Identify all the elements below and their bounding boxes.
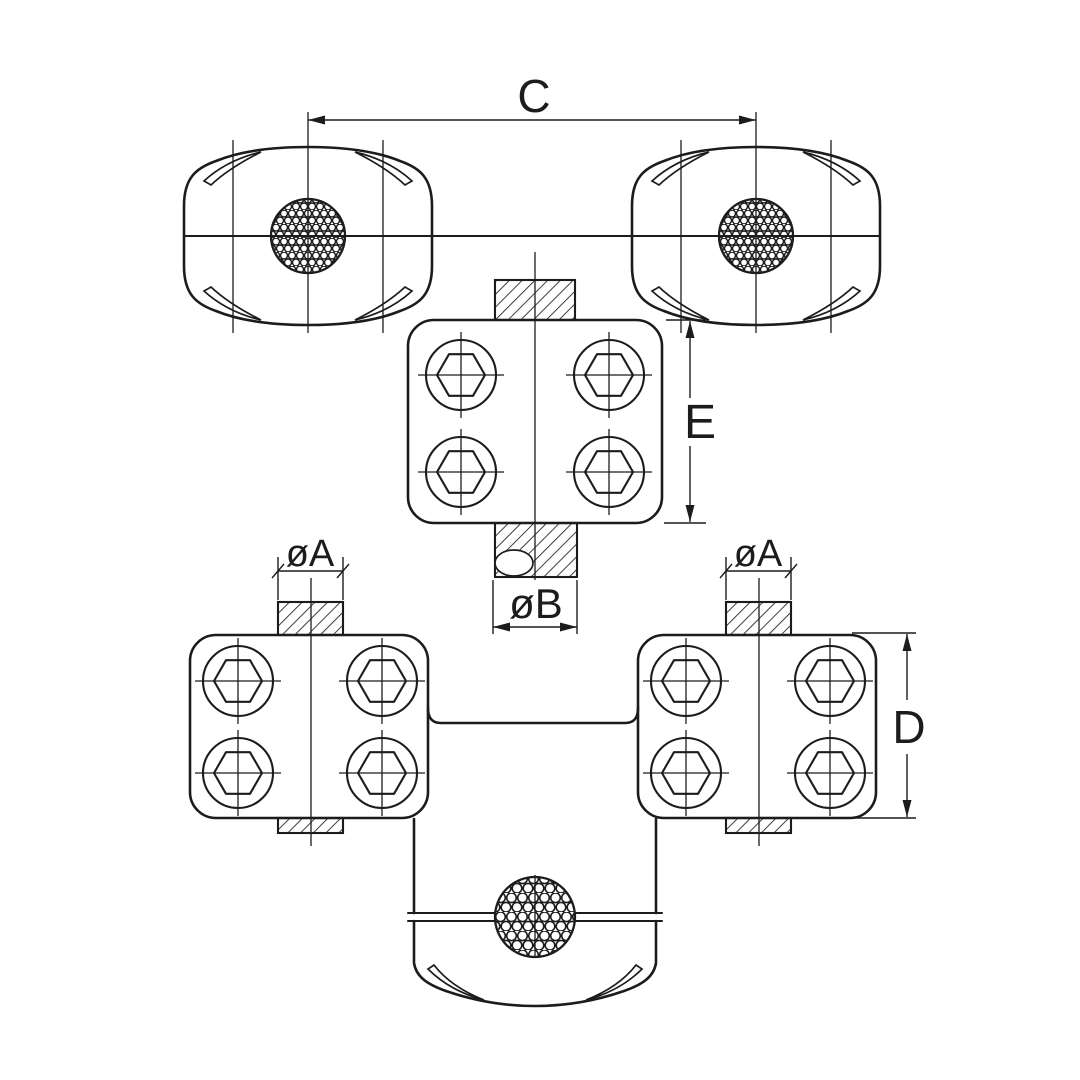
stud-dome-end: [495, 550, 533, 576]
dimension-ob: øB: [493, 580, 577, 634]
arrowhead-up: [686, 321, 695, 338]
technical-drawing: C E øB øA øA: [0, 0, 1080, 1080]
right-conductor-clamp: [632, 112, 880, 333]
center-pad: [408, 252, 662, 580]
dimension-c: C: [308, 70, 756, 125]
dimension-oa-left-label: øA: [286, 533, 335, 575]
arrowhead-left: [308, 116, 325, 125]
drawing-canvas: C E øB øA øA: [0, 0, 1080, 1080]
arrowhead-up: [903, 634, 912, 651]
arrowhead-down: [903, 800, 912, 817]
dimension-e: E: [664, 320, 716, 523]
right-pad-block: [638, 557, 876, 846]
arrowhead-down: [686, 505, 695, 522]
arrowhead-right: [739, 116, 756, 125]
dimension-ob-label: øB: [509, 580, 563, 627]
left-pad-block: [190, 557, 428, 846]
connecting-web: [428, 708, 638, 723]
dimension-e-label: E: [684, 396, 716, 449]
hex-bolt: [566, 429, 652, 515]
hex-bolt: [418, 332, 504, 418]
dimension-d-label: D: [892, 701, 925, 753]
hex-bolt: [418, 429, 504, 515]
dimension-c-label: C: [517, 70, 550, 122]
arrowhead-left: [493, 623, 510, 632]
left-conductor-clamp: [184, 112, 432, 333]
bottom-cable-clamp: [408, 819, 662, 1006]
hex-bolt: [566, 332, 652, 418]
dimension-oa-right-label: øA: [734, 533, 783, 575]
